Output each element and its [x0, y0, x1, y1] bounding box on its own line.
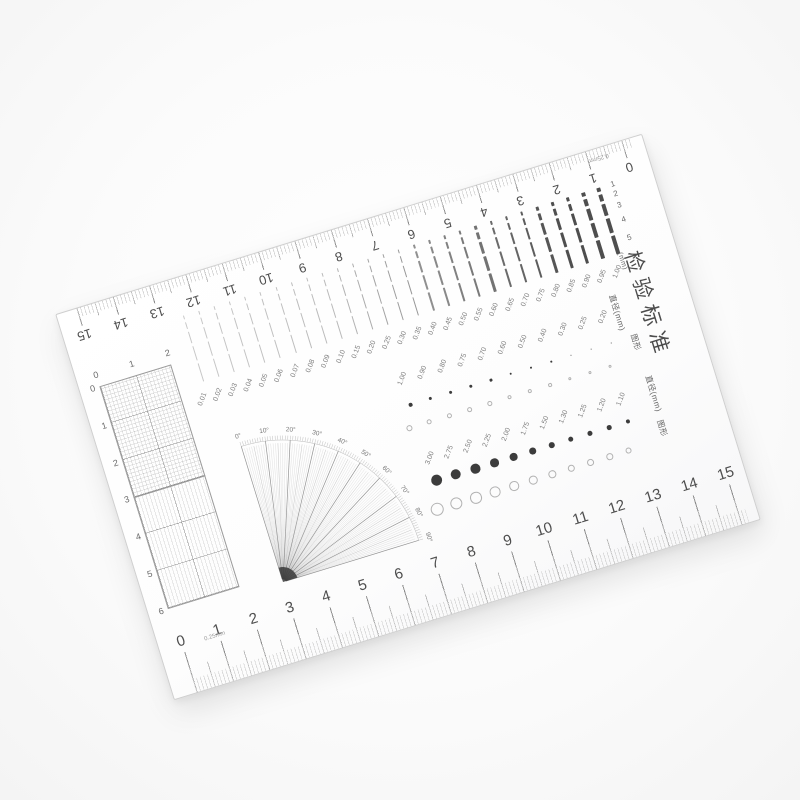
- gauge-dash: [575, 227, 583, 243]
- gauge-dash: [382, 306, 388, 324]
- ruler-top-number: 6: [406, 226, 417, 242]
- dot-value-label: 0.75: [457, 353, 468, 368]
- line-width-label: 0.25: [381, 335, 392, 350]
- figure-label: 图形: [654, 419, 670, 438]
- gauge-dash: [537, 213, 542, 221]
- gauge-dash: [244, 297, 246, 301]
- ruler-bottom-number: 10: [534, 519, 555, 540]
- gauge-dash: [231, 308, 234, 315]
- dash-length-label: 5: [626, 233, 633, 243]
- gauge-dash: [208, 341, 213, 356]
- filled-dot: [489, 378, 492, 381]
- line-width-label: 0.75: [535, 288, 546, 303]
- line-gauge-column: [244, 297, 265, 363]
- line-gauge-column: [321, 273, 342, 339]
- gauge-dash: [219, 323, 223, 334]
- gauge-dash: [275, 287, 277, 291]
- gauge-dash: [444, 235, 447, 239]
- dot-value-label: 0.70: [477, 346, 488, 361]
- line-gauge-column: [413, 244, 435, 310]
- grid-col-label: 1: [128, 358, 136, 369]
- gauge-dash: [504, 268, 512, 287]
- line-width-label: 0.03: [228, 382, 239, 397]
- gauge-dash: [269, 322, 274, 337]
- line-width-label: 0.02: [212, 387, 223, 402]
- gauge-dash: [250, 313, 254, 324]
- gauge-dash: [474, 225, 477, 229]
- gauge-dash: [430, 246, 434, 254]
- protractor-degree-label: 40°: [336, 436, 349, 447]
- line-width-label: 0.09: [320, 354, 331, 369]
- hollow-dot: [467, 407, 473, 413]
- gauge-dash: [476, 232, 480, 240]
- line-width-label: 0.30: [397, 330, 408, 345]
- filled-dot: [509, 452, 518, 461]
- gauge-dash: [565, 249, 574, 268]
- hollow-dot: [567, 464, 576, 473]
- gauge-dash: [400, 256, 404, 264]
- hollow-dot: [488, 485, 501, 498]
- gauge-dash: [229, 301, 231, 305]
- gauge-dash: [384, 260, 387, 268]
- dot-value-label: 0.90: [417, 365, 428, 380]
- line-gauge-column: [229, 301, 250, 367]
- line-gauge-column: [367, 259, 388, 325]
- top-ruler-ticks: [76, 138, 636, 326]
- ruler-bottom-number: 14: [679, 474, 700, 495]
- hollow-dot: [528, 475, 539, 486]
- gauge-dash: [377, 289, 382, 304]
- gauge-dash: [552, 208, 557, 216]
- line-width-label: 0.70: [520, 293, 531, 308]
- line-gauge-column: [306, 278, 327, 344]
- filled-dot: [591, 349, 592, 350]
- grid-row-label: 0: [89, 383, 97, 394]
- line-width-label: 0.15: [351, 344, 362, 359]
- filled-dot: [587, 430, 593, 436]
- hollow-dot: [508, 480, 520, 492]
- hollow-dot: [449, 496, 465, 512]
- grid-col-label: 0: [92, 369, 100, 380]
- gauge-dash: [566, 197, 570, 202]
- filled-dot: [530, 366, 532, 368]
- hollow-dot: [605, 452, 613, 460]
- gauge-dash: [606, 218, 614, 234]
- hollow-dot: [586, 458, 594, 466]
- filled-dot: [449, 468, 462, 481]
- gauge-dash: [596, 187, 601, 192]
- hollow-dot: [547, 469, 557, 479]
- title-character: 验: [627, 273, 659, 304]
- ruler-bottom-number: 8: [465, 542, 478, 561]
- line-width-label: 0.10: [335, 349, 346, 364]
- dot-value-label: 1.10: [615, 392, 626, 407]
- line-width-label: 0.65: [504, 297, 515, 312]
- gauge-dash: [285, 317, 290, 332]
- gauge-dash: [540, 223, 546, 235]
- dot-value-label: 0.20: [597, 309, 608, 324]
- protractor-degree-label: 0°: [234, 431, 243, 441]
- gauge-dash: [200, 317, 203, 324]
- ruler-bottom-number: 11: [570, 508, 590, 529]
- gauge-dash: [415, 251, 419, 259]
- hollow-dot: [568, 377, 572, 381]
- gauge-dash: [514, 246, 521, 261]
- gauge-dash: [326, 290, 330, 301]
- gauge-dash: [505, 216, 509, 220]
- ruler-top-number: 5: [442, 215, 453, 231]
- dot-value-label: 0.60: [497, 340, 508, 355]
- dot-value-label: 2.75: [443, 445, 454, 460]
- ruler-top-number: 12: [184, 292, 202, 311]
- title-character: 准: [643, 327, 675, 358]
- filled-dot: [611, 342, 612, 343]
- line-width-label: 0.95: [596, 269, 607, 284]
- gauge-dash: [198, 363, 204, 381]
- gauge-dash: [265, 308, 269, 319]
- filled-dot: [548, 441, 555, 448]
- gauge-dash: [560, 232, 568, 247]
- ruler-top-number: 1: [587, 170, 598, 186]
- line-gauge-column: [275, 287, 296, 353]
- gauge-dash: [296, 299, 300, 310]
- grid-col-label: 2: [164, 347, 172, 358]
- gauge-dash: [583, 199, 589, 207]
- gauge-dash: [372, 275, 376, 286]
- gauge-dash: [596, 240, 605, 259]
- gauge-dash: [351, 316, 357, 334]
- dot-value-label: 1.25: [577, 403, 588, 418]
- filled-dot: [449, 390, 453, 394]
- ruler-bottom-number: 15: [715, 463, 736, 484]
- filled-dot: [606, 425, 612, 431]
- line-width-label: 0.60: [489, 302, 500, 317]
- gauge-dash: [336, 321, 342, 339]
- gauge-dash: [198, 311, 200, 315]
- filled-dot: [528, 447, 536, 455]
- line-gauge-column: [291, 282, 312, 348]
- gauge-dash: [520, 211, 524, 215]
- dot-value-label: 0.25: [577, 316, 588, 331]
- gauge-dash: [580, 245, 589, 264]
- hollow-dot: [588, 371, 592, 375]
- line-width-label: 0.85: [566, 278, 577, 293]
- gauge-dash: [464, 247, 469, 258]
- filled-dot: [428, 396, 432, 400]
- gauge-dash: [494, 237, 500, 249]
- dash-length-label: 4: [620, 214, 627, 224]
- gauge-dash: [550, 254, 558, 273]
- gauge-dash: [571, 214, 578, 226]
- filled-dot: [625, 419, 630, 424]
- gauge-dash: [331, 303, 336, 318]
- dot-value-label: 2.25: [482, 433, 493, 448]
- gauge-dash: [461, 237, 465, 245]
- filled-dot: [570, 355, 571, 356]
- ruler-top-number: 13: [148, 303, 166, 322]
- gauge-dash: [422, 275, 428, 290]
- gauge-dash: [280, 304, 284, 315]
- line-gauge-column: [198, 311, 219, 377]
- gauge-dash: [586, 209, 593, 221]
- protractor-degree-label: 80°: [413, 506, 425, 519]
- gauge-dash: [311, 294, 315, 305]
- gauge-dash: [361, 294, 366, 309]
- protractor-degree-label: 20°: [286, 425, 297, 434]
- gauge-dash: [545, 237, 552, 252]
- line-width-label: 0.05: [259, 373, 270, 388]
- title-character: 标: [635, 300, 667, 331]
- gauge-dash: [433, 256, 438, 267]
- gauge-dash: [489, 221, 492, 225]
- gauge-dash: [428, 240, 431, 244]
- gauge-dash: [598, 194, 604, 202]
- gauge-dash: [568, 203, 573, 211]
- gauge-dash: [275, 340, 281, 358]
- gauge-dash: [213, 359, 219, 377]
- gauge-dash: [507, 222, 512, 230]
- filled-dot: [489, 457, 500, 468]
- gauge-dash: [525, 228, 531, 240]
- gauge-dash: [474, 278, 482, 297]
- gauge-dash: [397, 302, 404, 320]
- gauge-dash: [489, 273, 497, 292]
- calibration-card: 0°10°20°30°40°50°60°70°80°90° 0011223344…: [55, 134, 761, 701]
- gauge-dash: [458, 283, 465, 302]
- gauge-dash: [413, 244, 416, 248]
- gauge-dash: [234, 318, 238, 329]
- dash-length-label: 3: [616, 200, 623, 210]
- filled-dot: [509, 372, 512, 375]
- gauge-dash: [392, 284, 398, 299]
- gauge-dash: [321, 273, 323, 277]
- dot-value-label: 0.50: [517, 334, 528, 349]
- gauge-dash: [254, 327, 259, 342]
- line-gauge-column: [260, 292, 281, 358]
- gauge-dash: [354, 270, 357, 277]
- ruler-top-number: 8: [333, 249, 344, 265]
- gauge-dash: [192, 346, 197, 361]
- gauge-dash: [428, 292, 435, 311]
- gauge-dash: [388, 271, 392, 282]
- gauge-dash: [342, 285, 346, 296]
- protractor-degree-label: 90°: [424, 531, 435, 543]
- filled-dot: [469, 463, 481, 475]
- line-width-label: 0.90: [581, 274, 592, 289]
- gauge-dash: [556, 218, 562, 230]
- gauge-dash: [443, 287, 450, 306]
- line-width-label: 0.50: [458, 311, 469, 326]
- hollow-dot: [548, 383, 552, 387]
- gauge-dash: [259, 344, 265, 362]
- line-width-label: 0.04: [243, 378, 254, 393]
- ruler-top-number: 9: [297, 260, 308, 276]
- gauge-dash: [483, 256, 490, 271]
- diameter-label: 直径(mm): [643, 374, 665, 413]
- hollow-dot: [625, 447, 633, 455]
- line-gauge-column: [428, 240, 450, 306]
- dot-value-label: 1.50: [539, 415, 550, 430]
- gauge-dash: [407, 280, 413, 295]
- gauge-dash: [323, 279, 326, 286]
- gauge-dash: [519, 264, 527, 283]
- gauge-dash: [601, 204, 608, 216]
- ruler-top-number: 10: [257, 270, 275, 289]
- gauge-dash: [398, 249, 400, 253]
- hollow-dot: [527, 389, 532, 394]
- dot-value-label: 2.00: [501, 427, 512, 442]
- gauge-dash: [412, 297, 419, 316]
- ruler-top-number: 14: [112, 315, 130, 334]
- gauge-dash: [306, 278, 308, 282]
- gauge-dash: [238, 332, 243, 347]
- gauge-dash: [403, 266, 408, 277]
- gauge-dash: [535, 259, 543, 278]
- gauge-dash: [315, 308, 320, 323]
- gauge-dash: [352, 263, 354, 267]
- ruler-top-number: 4: [478, 204, 489, 220]
- gauge-dash: [459, 230, 462, 234]
- dash-length-label: 2: [612, 189, 619, 199]
- line-width-label: 0.55: [474, 307, 485, 322]
- gauge-dash: [308, 284, 311, 291]
- grid-row-label: 1: [100, 420, 108, 431]
- line-width-label: 0.40: [427, 321, 438, 336]
- gauge-dash: [290, 335, 296, 353]
- gauge-dash: [453, 265, 459, 280]
- gauge-dash: [277, 294, 280, 301]
- diameter-label: 直径(mm): [606, 293, 628, 332]
- protractor-degree-label: 30°: [311, 428, 323, 438]
- ruler-bottom-number: 9: [501, 531, 514, 550]
- gauge-dash: [446, 241, 450, 249]
- gauge-dash: [418, 261, 423, 272]
- hollow-dot: [487, 400, 493, 406]
- dot-value-label: 1.20: [596, 398, 607, 413]
- gauge-dash: [438, 270, 444, 285]
- gauge-dash: [305, 330, 311, 348]
- gauge-dash: [468, 261, 474, 276]
- line-width-label: 0.80: [550, 283, 561, 298]
- line-width-label: 0.06: [274, 368, 285, 383]
- gauge-dash: [369, 265, 372, 273]
- gauge-dash: [185, 322, 188, 329]
- gauge-dash: [367, 311, 373, 329]
- filled-dot: [469, 384, 473, 388]
- gauge-dash: [216, 313, 219, 320]
- gauge-dash: [244, 349, 250, 367]
- gauge-dash: [479, 242, 485, 254]
- gauge-dash: [339, 275, 342, 282]
- line-width-label: 0.08: [305, 359, 316, 374]
- gauge-dash: [228, 354, 234, 372]
- title-character: 检: [618, 246, 650, 277]
- gauge-dash: [262, 298, 265, 305]
- gauge-dash: [367, 259, 369, 263]
- gauge-dash: [188, 332, 192, 343]
- line-width-label: 0.07: [289, 363, 300, 378]
- photo-background: 0°10°20°30°40°50°60°70°80°90° 0011223344…: [0, 0, 800, 800]
- filled-dot: [550, 361, 552, 363]
- figure-label: 图形: [628, 333, 644, 352]
- line-gauge-column: [382, 254, 403, 320]
- gauge-dash: [260, 292, 262, 296]
- filled-dot: [568, 436, 574, 442]
- gauge-dash: [449, 252, 454, 263]
- gauge-dash: [382, 254, 384, 258]
- hollow-dot: [507, 395, 512, 400]
- ruler-bottom-number: 13: [643, 485, 664, 506]
- gauge-dash: [203, 327, 207, 338]
- line-width-label: 0.20: [366, 340, 377, 355]
- gauge-dash: [590, 223, 598, 239]
- ruler-top-number: 11: [221, 281, 238, 299]
- ruler-top-number: 0: [624, 159, 635, 175]
- dot-value-label: 2.50: [463, 439, 474, 454]
- dot-value-label: 1.75: [520, 421, 531, 436]
- gauge-dash: [246, 303, 249, 310]
- hollow-dot: [426, 419, 433, 426]
- ruler-top-number: 3: [515, 193, 526, 209]
- line-gauge-column: [398, 249, 420, 315]
- gauge-dash: [491, 227, 496, 235]
- gauge-dash: [321, 325, 327, 343]
- gauge-dash: [522, 218, 527, 226]
- gauge-dash: [346, 299, 351, 314]
- gauge-dash: [300, 313, 305, 328]
- line-gauge-column: [352, 263, 373, 329]
- dot-value-label: 1.30: [558, 409, 569, 424]
- line-width-label: 0.01: [197, 392, 208, 407]
- line-width-label: 0.35: [412, 326, 423, 341]
- ruler-top-number: 15: [75, 326, 93, 345]
- gauge-dash: [291, 282, 293, 286]
- gauge-dash: [337, 268, 339, 272]
- ruler-top-number: 7: [369, 237, 380, 253]
- gauge-dash: [581, 192, 586, 197]
- hollow-dot: [446, 413, 452, 419]
- ruler-bottom-number: 12: [606, 497, 627, 518]
- gauge-dash: [510, 233, 516, 245]
- line-width-label: 0.45: [443, 316, 454, 331]
- gauge-dash: [499, 251, 506, 266]
- gauge-dash: [535, 206, 539, 211]
- hollow-dot: [469, 490, 483, 504]
- dash-length-label: 1: [609, 179, 616, 189]
- gauge-dash: [550, 202, 554, 207]
- gauge-dash: [183, 315, 185, 319]
- gauge-dash: [529, 242, 536, 257]
- line-gauge-column: [183, 315, 204, 381]
- dot-value-label: 0.80: [437, 359, 448, 374]
- gauge-dash: [223, 336, 228, 351]
- gauge-dash: [214, 306, 216, 310]
- protractor-degree-label: 70°: [399, 484, 412, 497]
- line-gauge-column: [214, 306, 235, 372]
- protractor-degree-label: 50°: [360, 448, 373, 460]
- protractor-degree-label: 10°: [259, 426, 270, 435]
- dot-value-label: 0.40: [537, 328, 548, 343]
- hollow-dot: [608, 364, 612, 368]
- gauge-dash: [357, 280, 361, 291]
- gauge-dash: [293, 289, 296, 296]
- dot-value-label: 0.30: [557, 322, 568, 337]
- ruler-top-number: 2: [551, 181, 562, 197]
- line-gauge-column: [337, 268, 358, 334]
